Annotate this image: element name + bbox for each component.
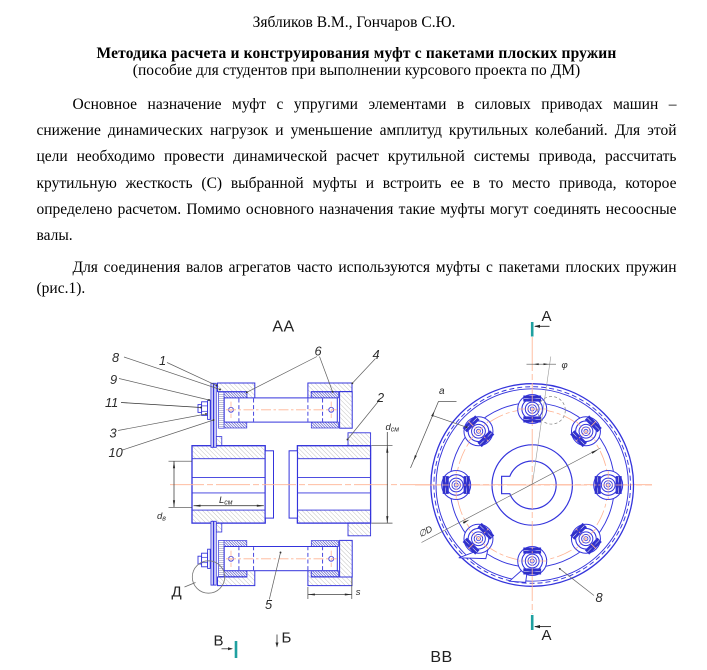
svg-text:a: a <box>439 386 445 397</box>
svg-text:А: А <box>542 627 552 644</box>
svg-text:Б: Б <box>282 630 292 647</box>
svg-text:1: 1 <box>159 353 166 368</box>
svg-text:АА: АА <box>272 319 294 336</box>
svg-text:А: А <box>542 308 552 325</box>
svg-text:dсм: dсм <box>386 422 400 434</box>
svg-text:10: 10 <box>109 445 124 460</box>
svg-text:9: 9 <box>110 372 117 387</box>
svg-text:ВВ: ВВ <box>430 649 452 666</box>
svg-text:8: 8 <box>112 350 120 365</box>
svg-text:φ: φ <box>562 360 568 371</box>
svg-text:11: 11 <box>105 395 118 410</box>
svg-text:s: s <box>356 587 361 598</box>
svg-text:8: 8 <box>596 590 604 605</box>
svg-text:4: 4 <box>373 347 380 362</box>
svg-text:6: 6 <box>315 344 323 359</box>
svg-text:dв: dв <box>157 511 166 523</box>
svg-text:3: 3 <box>110 426 117 441</box>
svg-text:5: 5 <box>265 597 273 612</box>
svg-text:2: 2 <box>376 390 384 405</box>
svg-text:В: В <box>214 633 224 650</box>
svg-text:Д: Д <box>172 584 182 601</box>
